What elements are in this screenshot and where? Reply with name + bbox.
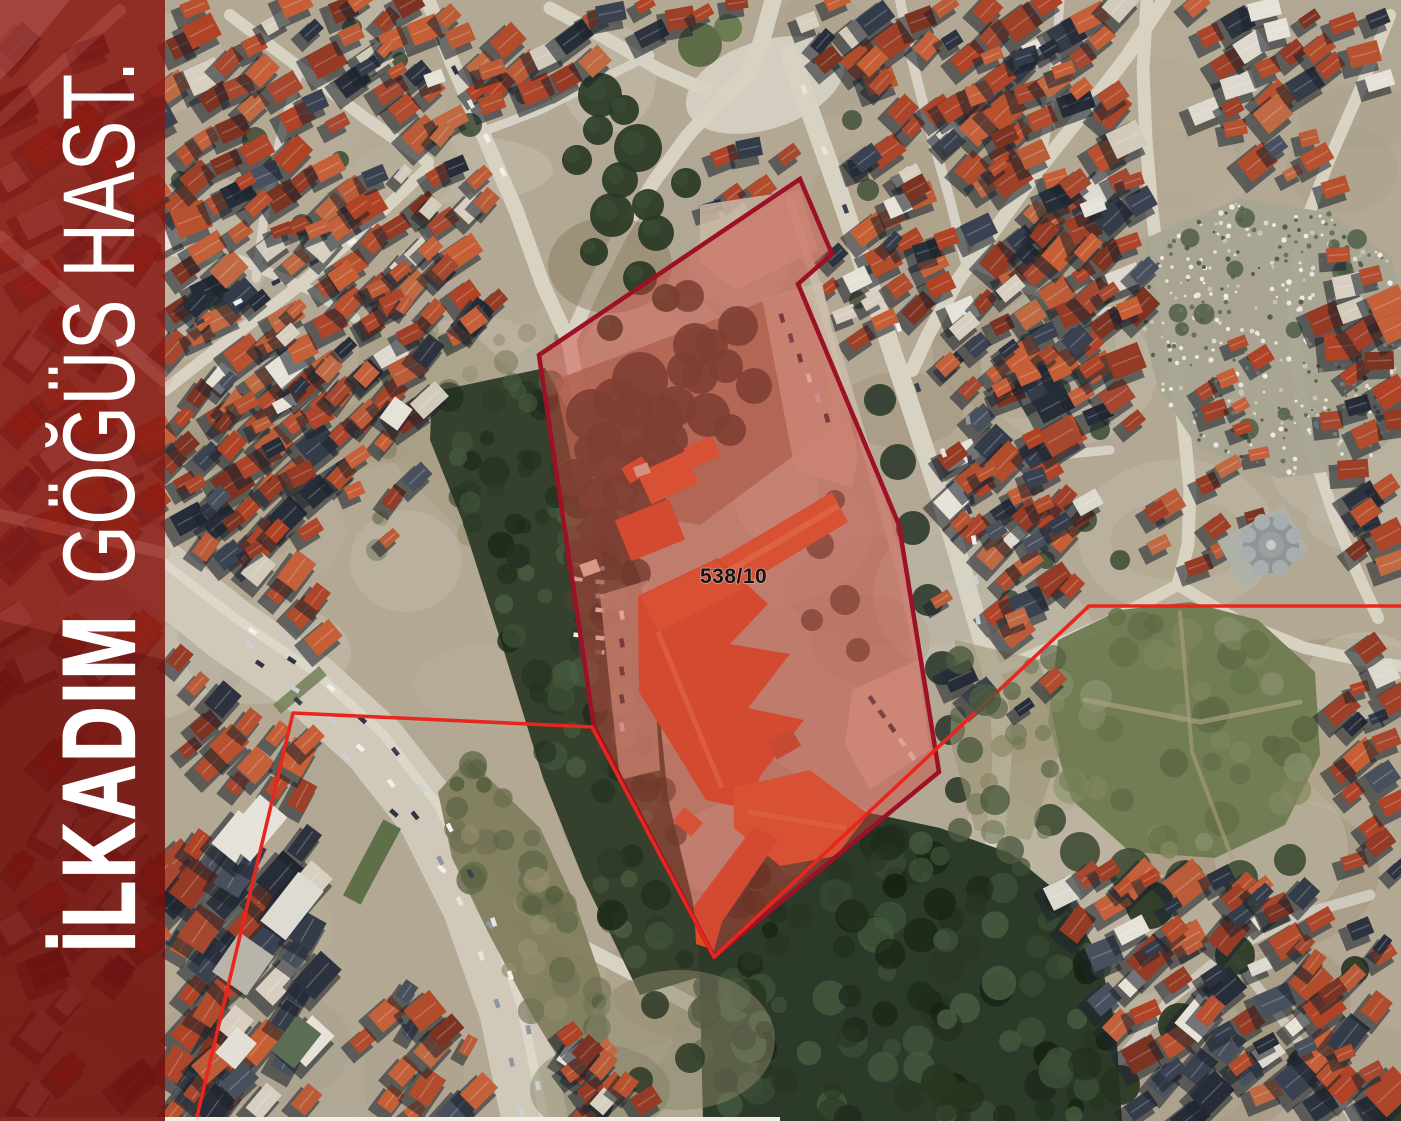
svg-text:538/10: 538/10 [700,565,767,588]
svg-text:İLKADIMGÖĞÜS HAST.: İLKADIMGÖĞÜS HAST. [42,61,156,952]
